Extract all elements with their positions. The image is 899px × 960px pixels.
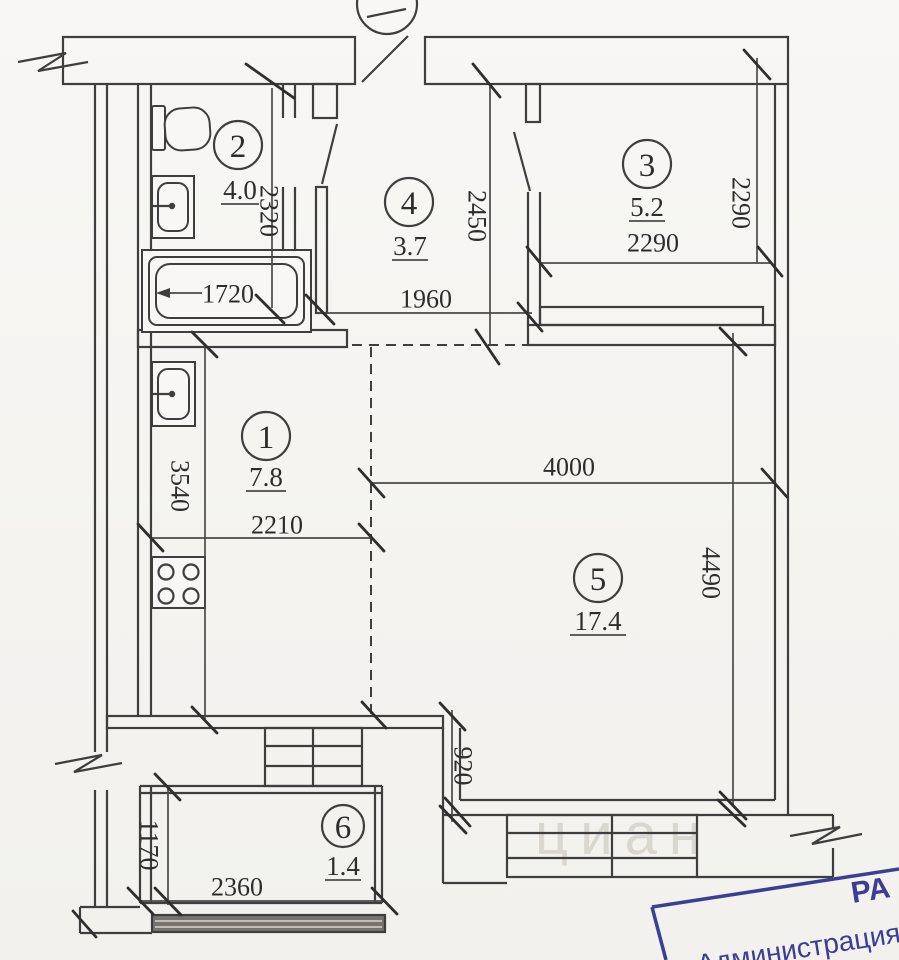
svg-text:7.8: 7.8 bbox=[249, 462, 283, 492]
dim-balcony-width: 2360 bbox=[211, 873, 263, 902]
dim-hall-height: 2450 bbox=[463, 190, 492, 242]
svg-text:6: 6 bbox=[335, 810, 352, 846]
svg-text:5: 5 bbox=[590, 562, 607, 598]
stamp-text-bottom: Администрация bbox=[694, 917, 899, 960]
svg-text:3.7: 3.7 bbox=[393, 231, 427, 261]
floor-plan: циан bbox=[0, 0, 899, 960]
dim-hall-width: 1960 bbox=[400, 285, 452, 314]
dim-kitchen-height: 3540 bbox=[166, 460, 195, 512]
room-label-2: 2 4.0 bbox=[214, 121, 262, 205]
svg-text:3: 3 bbox=[639, 148, 656, 184]
room-label-1: 1 7.8 bbox=[242, 412, 290, 492]
bathroom-sink-icon bbox=[152, 176, 194, 238]
duct-block bbox=[265, 728, 362, 786]
balcony-railing bbox=[152, 915, 385, 932]
dim-passage-width: 920 bbox=[449, 747, 478, 786]
dim-kitchen-width: 2210 bbox=[251, 511, 303, 540]
dim-room3-height: 2290 bbox=[727, 177, 756, 229]
dim-bathtub-length: 1720 bbox=[202, 280, 254, 309]
dim-room3-width: 2290 bbox=[627, 229, 679, 258]
svg-text:17.4: 17.4 bbox=[574, 606, 622, 636]
svg-text:1.4: 1.4 bbox=[326, 851, 360, 881]
svg-text:2: 2 bbox=[230, 129, 247, 165]
svg-text:1: 1 bbox=[258, 420, 275, 456]
svg-text:5.2: 5.2 bbox=[630, 192, 664, 222]
stamp-text-top: РА bbox=[849, 871, 893, 910]
dim-bath-height: 2320 bbox=[255, 185, 284, 237]
wall-break-symbols bbox=[18, 53, 862, 844]
room3-door bbox=[514, 132, 530, 191]
dim-room5-height: 4490 bbox=[697, 547, 726, 599]
stove-icon bbox=[152, 557, 205, 608]
bathroom-door bbox=[316, 124, 337, 313]
svg-text:4: 4 bbox=[401, 186, 418, 222]
room-label-4: 4 3.7 bbox=[385, 178, 433, 261]
drawing-sheet: циан bbox=[0, 0, 899, 960]
svg-text:4.0: 4.0 bbox=[223, 175, 257, 205]
opening-dashed-lines bbox=[352, 345, 528, 716]
dim-room5-width: 4000 bbox=[543, 453, 595, 482]
kitchen-sink-icon bbox=[152, 362, 195, 426]
toilet-icon bbox=[152, 106, 211, 151]
room-label-6: 6 1.4 bbox=[322, 805, 364, 881]
room-label-3: 3 5.2 bbox=[623, 140, 671, 222]
stamp: РА Администрация bbox=[652, 869, 899, 960]
room-label-5: 5 17.4 bbox=[570, 554, 626, 636]
dim-balcony-height: 1170 bbox=[135, 819, 164, 870]
entrance-door bbox=[357, 0, 417, 82]
